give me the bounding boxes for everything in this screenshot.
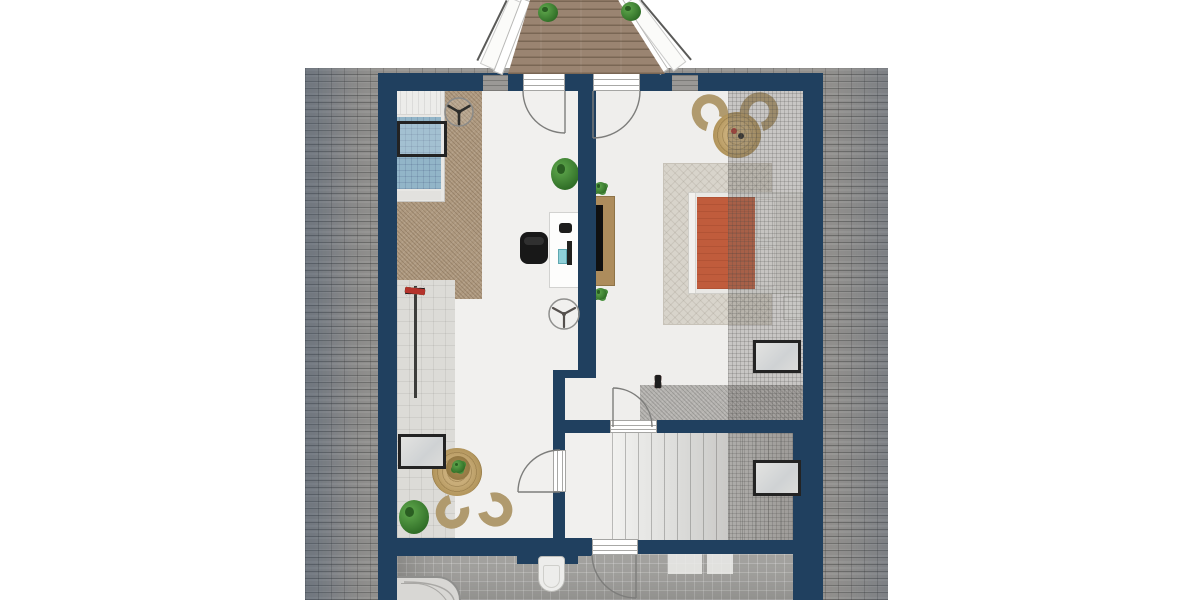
bedroom-right-door-swing bbox=[613, 388, 652, 427]
ceiling-fan-1 bbox=[445, 98, 473, 126]
plan-linework bbox=[0, 0, 1200, 600]
hall-door-swing bbox=[518, 450, 560, 492]
bathtub-inner-curve bbox=[404, 582, 454, 600]
bathroom-door-swing bbox=[592, 555, 636, 598]
balcony-plant-right bbox=[621, 2, 641, 21]
ceiling-fan-2 bbox=[549, 299, 579, 329]
balcony-door-right-swing bbox=[593, 91, 640, 138]
balcony-door-left-swing bbox=[523, 91, 565, 133]
balcony-plant-left bbox=[538, 3, 558, 22]
floor-plan-canvas bbox=[0, 0, 1200, 600]
